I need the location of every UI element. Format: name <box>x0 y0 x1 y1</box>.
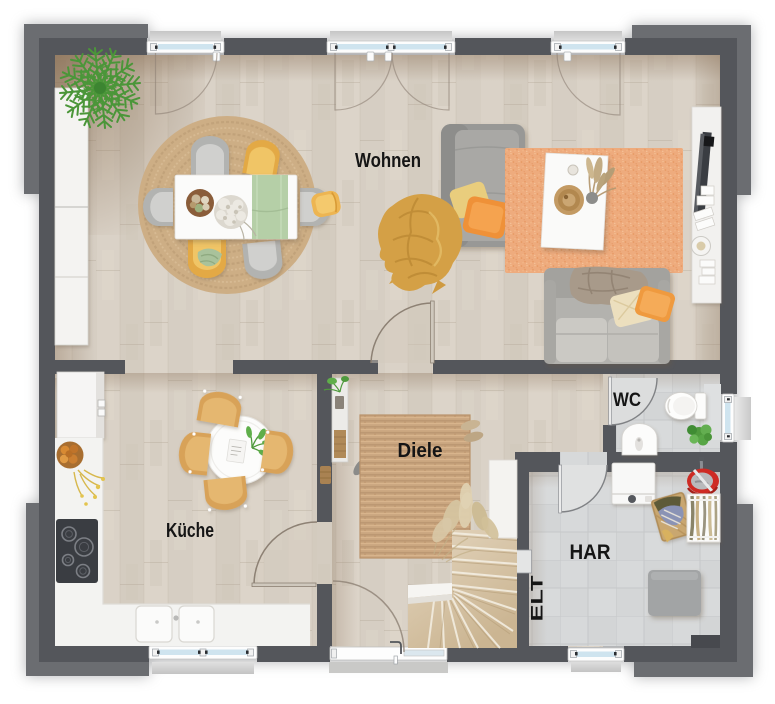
svg-text:Küche: Küche <box>166 520 214 542</box>
svg-text:Diele: Diele <box>398 440 443 462</box>
svg-text:Wohnen: Wohnen <box>355 150 421 172</box>
svg-text:HAR: HAR <box>570 541 611 564</box>
svg-text:ELT: ELT <box>529 576 547 622</box>
svg-text:WC: WC <box>613 390 641 411</box>
